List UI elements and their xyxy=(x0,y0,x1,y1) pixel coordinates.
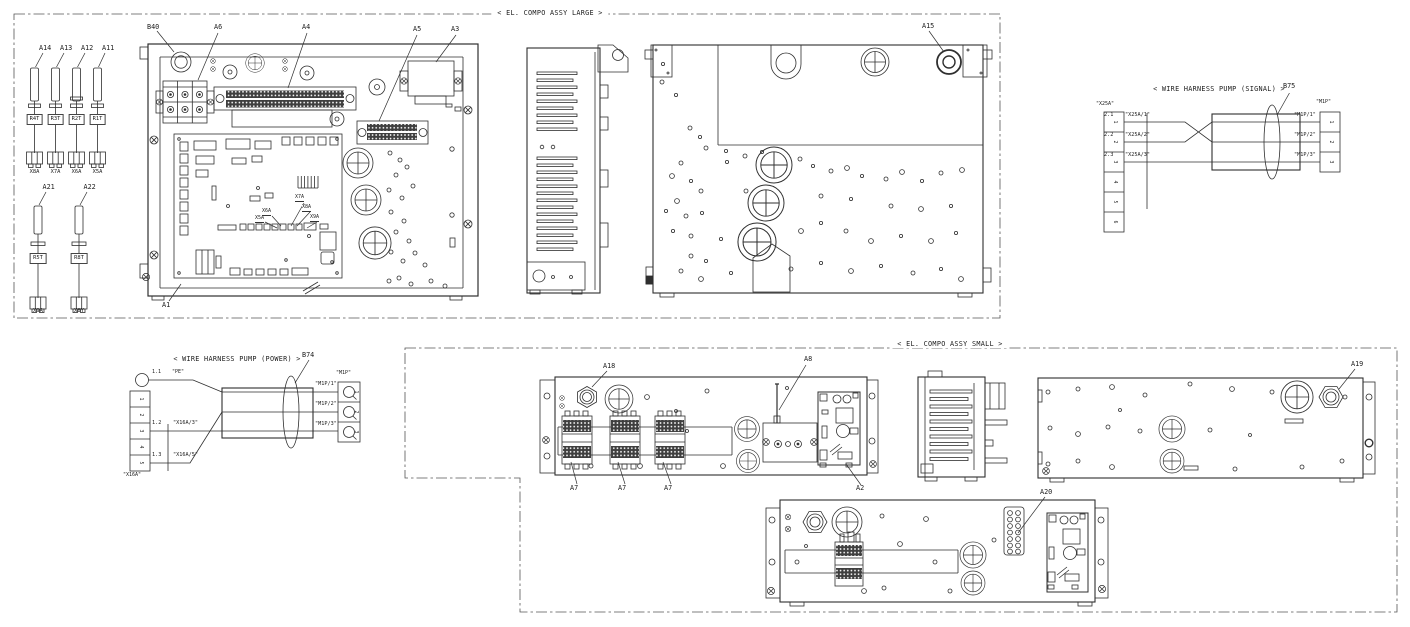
pigtail-part-label: A12 xyxy=(81,45,93,52)
label-a1: A1 xyxy=(162,302,170,309)
pigtail-connector-label: X5A xyxy=(93,170,103,176)
pigtail-connector-label: X6A xyxy=(72,170,82,176)
pcb-connector-label-x5a: X5A xyxy=(255,216,264,223)
pigtail: A22 R8T X8Y xyxy=(59,183,100,315)
label-a7-1: A7 xyxy=(570,485,578,492)
pigtail-relay-label: R2T xyxy=(68,114,85,125)
pigtail-part-label: A11 xyxy=(102,45,114,52)
signal-left-connector-name: "X25A" xyxy=(1096,102,1114,108)
pigtail-connector-label: X7A xyxy=(51,170,61,176)
pcb-connector-label-x6a: X6A xyxy=(262,209,271,216)
pin-number: 6 xyxy=(1104,212,1124,232)
power-pe-wire-label: "PE" xyxy=(172,370,184,376)
small-rear-panel-art xyxy=(1038,378,1375,482)
power-harness-title: < WIRE HARNESS PUMP (POWER) > xyxy=(167,355,306,363)
pigtail-connector-label: X8A xyxy=(30,170,40,176)
wire-to-label: "M1P/1" xyxy=(1294,113,1316,118)
pigtail-relay-label: R3T xyxy=(47,114,64,125)
drawing-lines xyxy=(14,14,1397,612)
pigtail: A12 R2T X6A xyxy=(66,44,87,180)
pin-number: 1 xyxy=(1104,112,1124,132)
wire-from-label: "X25A/3" xyxy=(1125,153,1150,158)
pigtail-connector-label: X8Y xyxy=(74,309,84,315)
wire-from-label: "X25A/2" xyxy=(1125,133,1150,138)
pin-number: 1 xyxy=(345,385,365,399)
label-a7-2: A7 xyxy=(618,485,626,492)
pcb-connector-label-x7a: X7A xyxy=(295,195,304,202)
pin-number: 3 xyxy=(1320,152,1340,172)
label-b74: B74 xyxy=(302,352,314,359)
large-side-view-art xyxy=(527,45,628,294)
pin-number: 2 xyxy=(345,405,365,419)
pigtail-relay-label: R1T xyxy=(89,114,106,125)
pin-number: 3 xyxy=(345,425,365,439)
power-right-connector-name: "M1P" xyxy=(336,371,351,377)
label-b40: B40 xyxy=(147,24,159,31)
pin-number: 2 xyxy=(1320,132,1340,152)
label-a4: A4 xyxy=(302,24,310,31)
pigtail-relay-label: R4T xyxy=(26,114,43,125)
pin-number: 5 xyxy=(1104,192,1124,212)
small-side-view-art xyxy=(918,371,1007,481)
wire-number: 1.3 xyxy=(152,453,161,458)
wire-from-label: "X16A/3" xyxy=(173,421,198,426)
line-art xyxy=(0,0,1410,627)
wire-from-label: "X25A/1" xyxy=(1125,113,1150,118)
small-front-panel-art xyxy=(540,377,878,475)
pigtail-part-label: A21 xyxy=(43,184,55,191)
pin-number: 4 xyxy=(1104,172,1124,192)
signal-harness-title: < WIRE HARNESS PUMP (SIGNAL) > xyxy=(1147,85,1291,93)
thermistor-pigtails-bottom: A21 R5T X9A A22 R8T X8Y xyxy=(18,183,100,315)
signal-right-connector-name: "M1P" xyxy=(1316,100,1331,106)
label-a19: A19 xyxy=(1351,361,1363,368)
label-a2: A2 xyxy=(856,485,864,492)
wire-to-label: "M1P/3" xyxy=(315,422,337,427)
power-pe-wire-number: 1.1 xyxy=(152,370,161,376)
pigtail-relay-label: R8T xyxy=(71,253,88,264)
pigtail-part-label: A13 xyxy=(60,45,72,52)
wire-from-label: "X16A/5" xyxy=(173,453,198,458)
label-a15: A15 xyxy=(922,23,934,30)
wire-to-label: "M1P/1" xyxy=(315,382,337,387)
section-title-small: < EL. COMPO ASSY SMALL > xyxy=(891,340,1008,348)
wire-to-label: "M1P/2" xyxy=(1294,133,1316,138)
pin-number: 3 xyxy=(1104,152,1124,172)
label-a8: A8 xyxy=(804,356,812,363)
pigtail-connector-label: X9A xyxy=(33,309,43,315)
section-title-large: < EL. COMPO ASSY LARGE > xyxy=(491,9,608,17)
power-left-connector-name: "X16A" xyxy=(123,473,141,479)
wire-to-label: "M1P/3" xyxy=(1294,153,1316,158)
pigtail-part-label: A14 xyxy=(39,45,51,52)
pin-number: 2 xyxy=(1104,132,1124,152)
label-a18: A18 xyxy=(603,363,615,370)
label-a3: A3 xyxy=(451,26,459,33)
pigtail: A14 R4T X8A xyxy=(24,44,45,180)
section-border-small xyxy=(405,348,1397,612)
signal-harness-art xyxy=(1104,105,1340,232)
label-a7-3: A7 xyxy=(664,485,672,492)
pigtail-part-label: A22 xyxy=(84,184,96,191)
pin-number: 5 xyxy=(132,453,148,473)
pigtail: A13 R3T X7A xyxy=(45,44,66,180)
label-a5: A5 xyxy=(413,26,421,33)
bottom-panel-art xyxy=(766,500,1108,606)
thermistor-pigtails-top: A14 R4T X8A A13 R3T X7A A12 R2T X6A A11 … xyxy=(24,44,108,180)
section-border-large xyxy=(14,14,1000,318)
large-rear-view-art xyxy=(645,45,992,297)
pcb-connector-label-x9a: X9A xyxy=(310,215,319,222)
wire-number: 1.2 xyxy=(152,421,161,426)
pcb-connector-label-x8a: X8A xyxy=(302,205,311,212)
large-front-panel-art xyxy=(140,44,478,300)
label-a20: A20 xyxy=(1040,489,1052,496)
label-a6: A6 xyxy=(214,24,222,31)
pigtail-relay-label: R5T xyxy=(30,253,47,264)
label-b75: B75 xyxy=(1283,83,1295,90)
wire-to-label: "M1P/2" xyxy=(315,402,337,407)
pigtail: A11 R1T X5A xyxy=(87,44,108,180)
pin-number: 1 xyxy=(1320,112,1340,132)
drawing-canvas: < EL. COMPO ASSY LARGE > < EL. COMPO ASS… xyxy=(0,0,1410,627)
pigtail: A21 R5T X9A xyxy=(18,183,59,315)
